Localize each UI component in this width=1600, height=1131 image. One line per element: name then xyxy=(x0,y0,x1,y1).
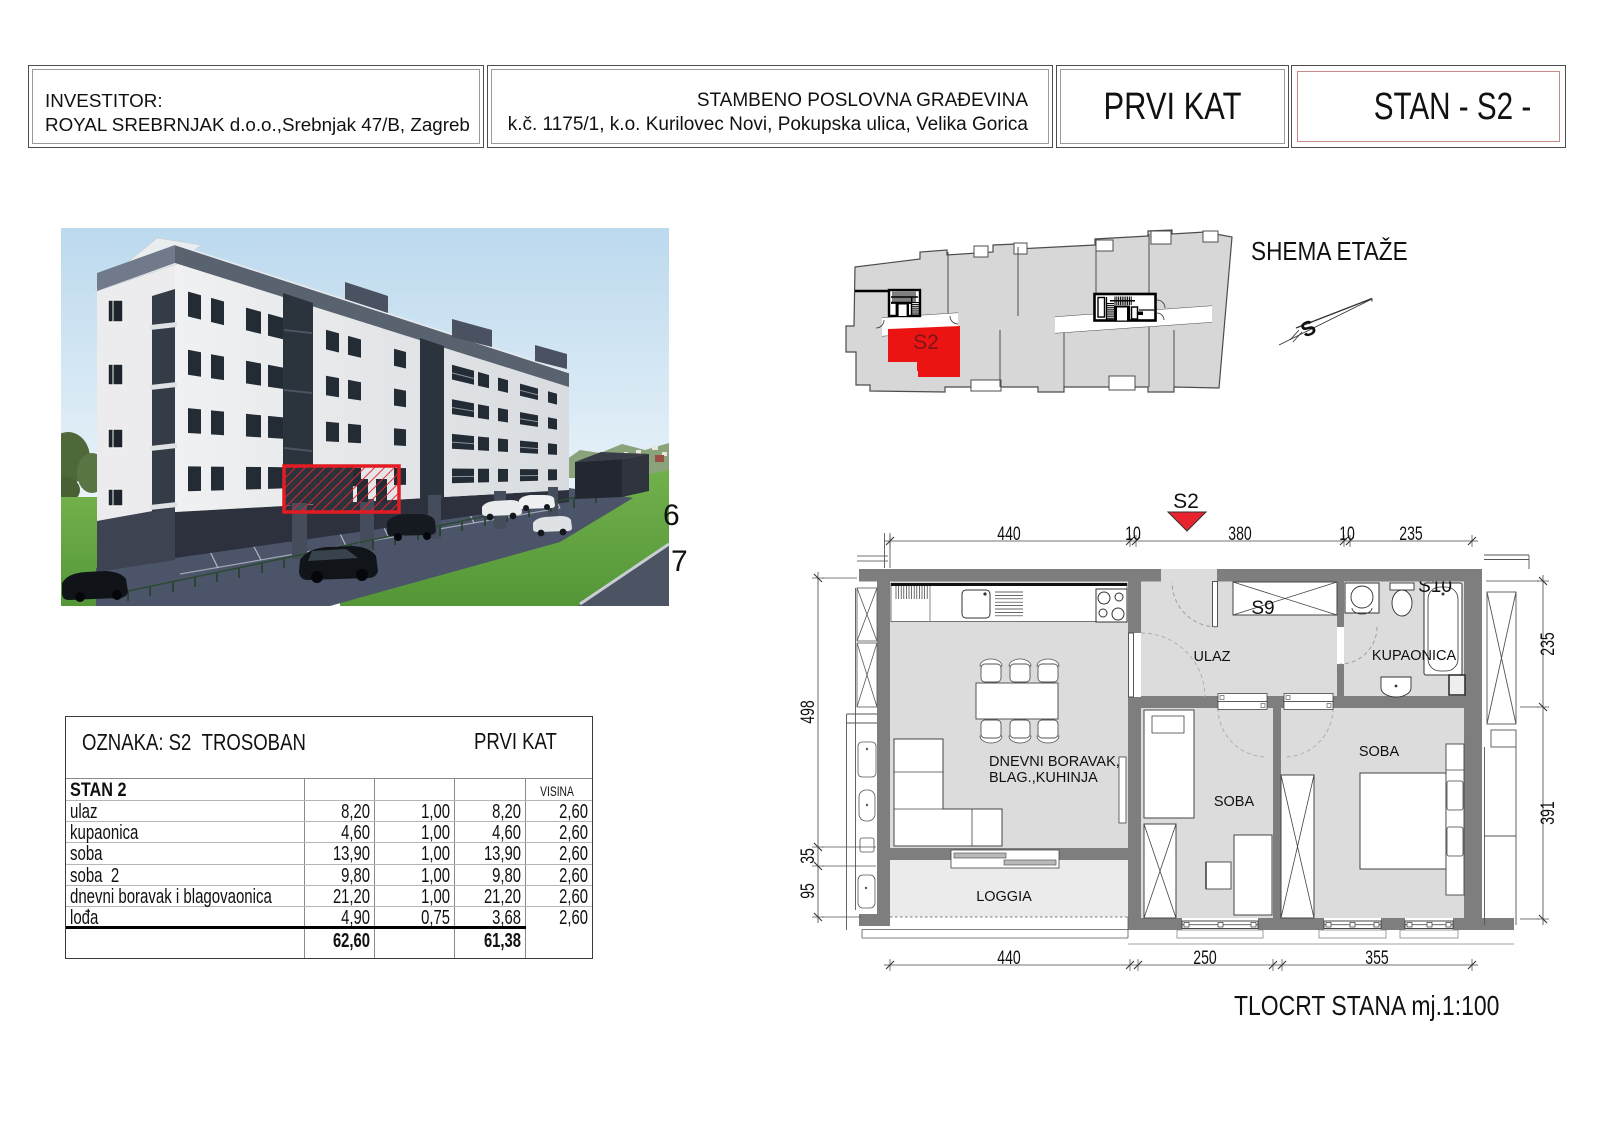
svg-text:SOBA: SOBA xyxy=(1359,744,1400,760)
svg-text:S9: S9 xyxy=(1251,598,1274,619)
svg-text:S2: S2 xyxy=(913,331,939,354)
svg-text:35: 35 xyxy=(797,848,819,864)
svg-text:355: 355 xyxy=(1365,947,1388,969)
svg-text:BLAG.,KUHINJA: BLAG.,KUHINJA xyxy=(989,770,1098,786)
svg-text:10: 10 xyxy=(1339,523,1355,545)
svg-text:DNEVNI BORAVAK,: DNEVNI BORAVAK, xyxy=(989,754,1120,770)
svg-text:SOBA: SOBA xyxy=(1214,794,1255,810)
svg-text:440: 440 xyxy=(997,523,1020,545)
svg-text:250: 250 xyxy=(1193,947,1216,969)
svg-text:95: 95 xyxy=(797,883,819,899)
svg-text:LOGGIA: LOGGIA xyxy=(976,889,1032,905)
svg-text:391: 391 xyxy=(1537,801,1559,824)
svg-text:S2: S2 xyxy=(1173,490,1199,513)
svg-text:KUPAONICA: KUPAONICA xyxy=(1372,648,1457,664)
svg-text:440: 440 xyxy=(997,947,1020,969)
svg-text:235: 235 xyxy=(1399,523,1422,545)
svg-text:380: 380 xyxy=(1228,523,1251,545)
svg-text:498: 498 xyxy=(797,700,819,723)
svg-text:ULAZ: ULAZ xyxy=(1193,649,1230,665)
svg-text:235: 235 xyxy=(1537,632,1559,655)
svg-text:10: 10 xyxy=(1125,523,1141,545)
